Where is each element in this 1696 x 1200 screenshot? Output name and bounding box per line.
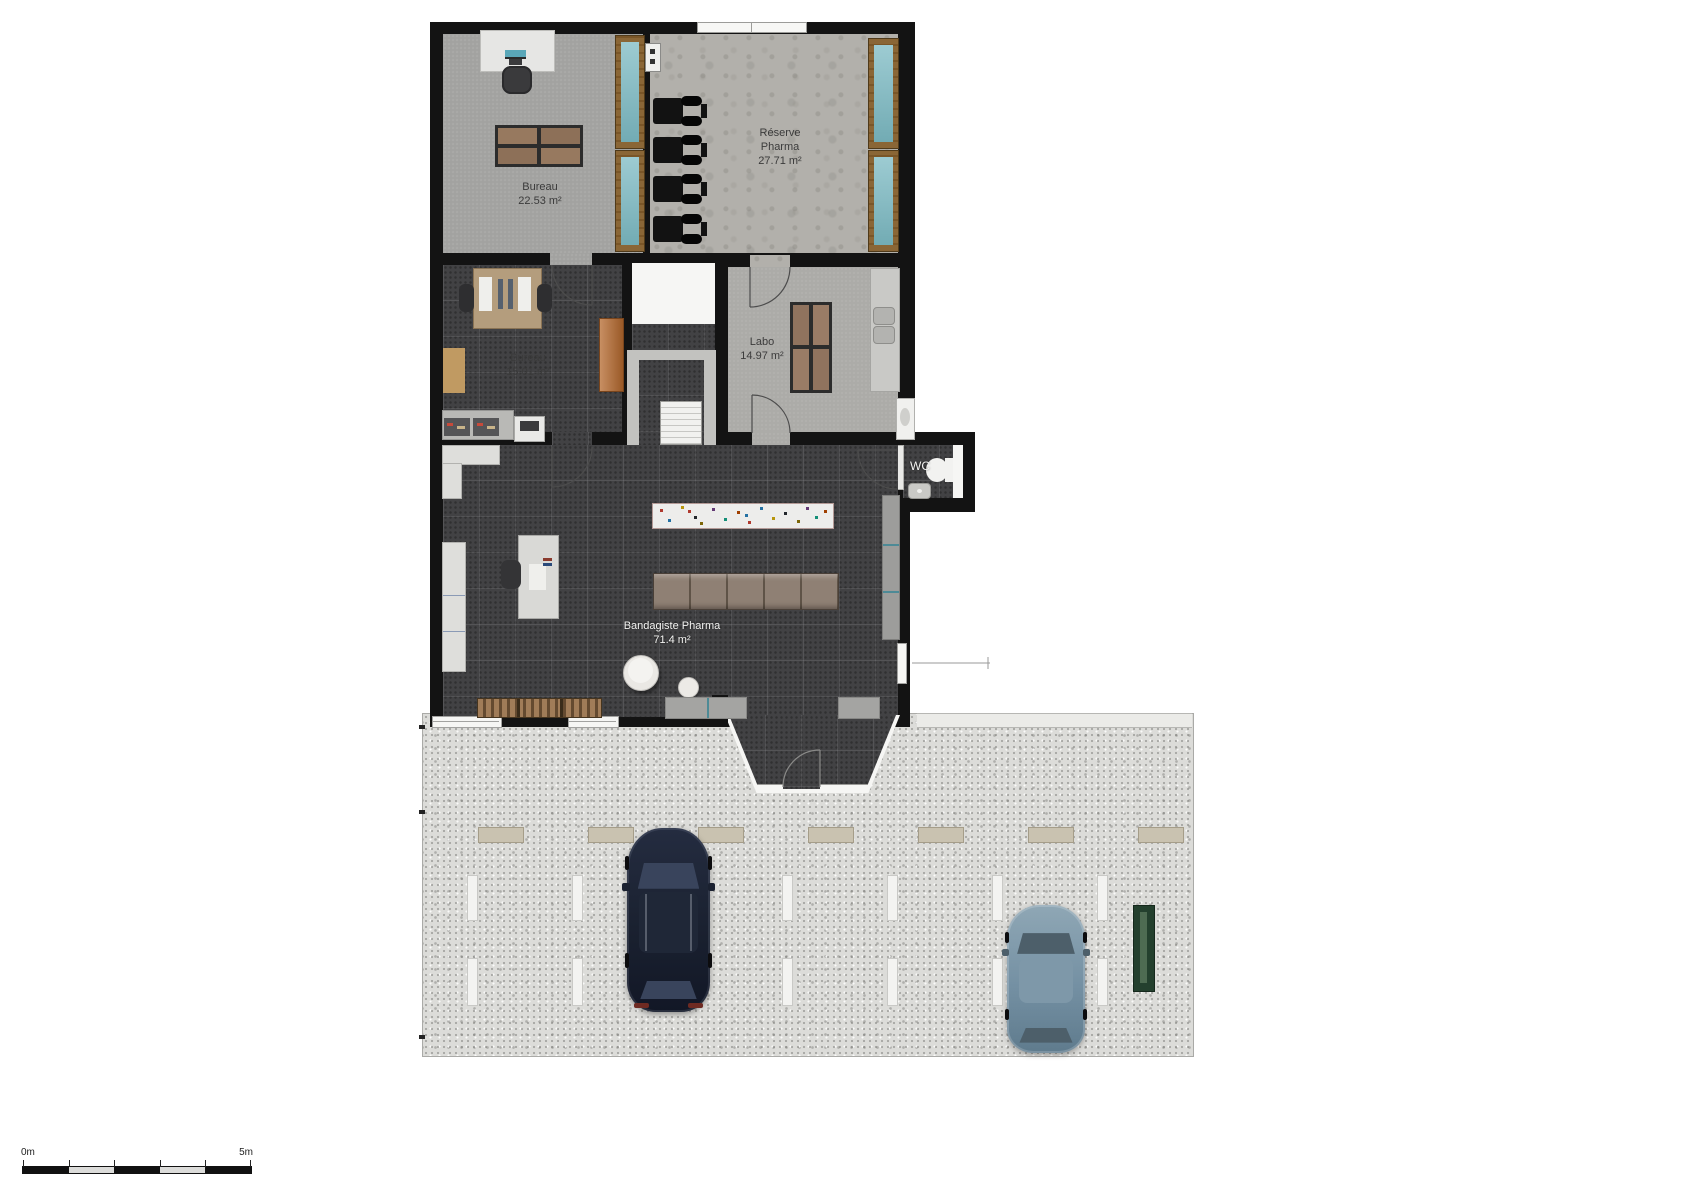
cabinet-row [653,573,839,610]
stair-shaft-wall [627,350,639,445]
scale-bar-tick [160,1160,161,1167]
car-rear-window [1019,1028,1072,1043]
scale-bar-tick [23,1160,24,1167]
wheelchair-seat [653,216,683,242]
cabinet-orange [599,318,624,392]
speed-bump [1028,827,1074,843]
storage-shelf [615,150,645,252]
keyboard [509,59,522,65]
dimension-tick [419,725,425,729]
vestibule-window [757,784,783,791]
car-rear-window [640,981,696,999]
printer-unit [473,418,499,436]
door-opening [752,432,790,445]
wheelchair-icon [653,174,708,204]
floor-plan-canvas: Bureau 22.53 m² Réserve Pharma 27.71 m² … [0,0,1696,1200]
desk-equipment [498,279,503,309]
speed-bump [698,827,744,843]
scale-bar-tick [69,1160,70,1167]
wc-sink [908,483,931,499]
table-panel [813,305,829,345]
product-dot [737,511,740,514]
car-windshield [1017,933,1075,954]
car-taillight [688,1003,703,1009]
wc-niche [953,445,963,498]
stool-large [623,655,659,691]
wheelchair-wheel [681,174,702,184]
product-dot [694,516,697,519]
car-wheel [708,953,712,968]
cabinet-divider [883,544,899,546]
desk-pad [529,564,546,590]
electrical-panel [645,43,661,72]
door-opening [550,253,592,265]
stall-marker [887,958,898,1006]
product-dot [815,516,818,519]
wheelchair-footrest [701,182,707,196]
car-wheel [708,856,712,871]
parking-curb-band [917,713,1192,728]
bench-divider [560,699,563,717]
stall-marker [572,875,583,921]
car-wheel [1005,1009,1009,1021]
office-chair [501,560,521,589]
stall-marker [467,875,478,921]
car-wheel [1083,932,1087,944]
room-label-labo: Labo 14.97 m² [712,336,812,364]
wheelchair-icon [653,214,708,244]
shelf-teal-inlay [874,157,893,245]
table-panel [541,128,580,144]
car-steel-blue [1007,905,1085,1053]
room-label-wc: WC [903,459,937,474]
room-label-shop: Bandagiste Pharma 71.4 m² [612,620,732,648]
sink [873,326,895,344]
car-mirror [1083,949,1090,956]
car-wheel [1005,932,1009,944]
panel-switch [650,59,655,64]
car-windshield [638,863,699,889]
car-roof-rail [690,894,692,951]
staircase [660,401,702,445]
scale-bar-start-label: 0m [21,1147,35,1158]
planter [1133,905,1155,992]
cabinet-divider [883,591,899,593]
wheelchair-icon [653,96,708,126]
printer-detail [477,423,483,426]
table-panel [813,349,829,390]
product-dot [772,517,775,520]
wheelchair-wheel [681,234,702,244]
product-dot [700,522,703,525]
table-panel [498,148,537,164]
dimension-tick [419,810,425,814]
wheelchair-wheel [681,116,702,126]
speed-bump [1138,827,1184,843]
washbasin-bowl [900,408,910,426]
product-dot [660,509,663,512]
shelf-divider [443,595,465,596]
stall-marker [1097,958,1108,1006]
wheelchair-seat [653,176,683,202]
room-label-reserve: Réserve Pharma 27.71 m² [730,127,830,168]
counter-divider [707,698,709,718]
wall-shelf [442,445,500,465]
scale-bar: 0m 5m [22,1166,252,1174]
stall-marker [467,958,478,1006]
wall-shelf [442,542,466,672]
waiting-bench [477,698,602,718]
car-roof-rail [645,894,647,951]
table-panel [498,128,537,144]
wheelchair-wheel [681,194,702,204]
stall-marker [992,875,1003,921]
stall-marker [572,958,583,1006]
stool-small [678,677,699,698]
shelf-teal-inlay [621,157,639,245]
entry-counter [665,697,747,719]
copier-bed [520,421,539,431]
room-label-bureau-mid: Bureau 15.01 m² [478,352,578,380]
scale-bar-segment [69,1167,115,1173]
stair-shaft-wall [627,350,716,360]
wc-sink-drain [917,489,922,493]
storage-shelf [615,35,645,149]
wheelchair-wheel [681,135,702,145]
wheelchair-footrest [701,143,707,157]
shop-desk [518,535,559,619]
bench-divider [517,699,520,717]
product-dot [748,521,751,524]
wheelchair-icon [653,135,708,165]
planter-inner [1140,912,1147,983]
printer-detail [457,426,465,429]
car-wheel [625,856,629,871]
door-opening [552,432,592,445]
car-wheel [625,953,629,968]
product-dot [760,507,763,510]
stall-marker [782,875,793,921]
speed-bump [588,827,634,843]
window-mullion [569,721,616,722]
speed-bump [808,827,854,843]
stair-void [632,263,715,324]
product-dot [806,507,809,510]
desk-pad [518,277,531,311]
scale-bar-segment [114,1167,160,1173]
stall-marker [1097,875,1108,921]
wheelchair-wheel [681,96,702,106]
scale-bar-segment [205,1167,251,1173]
wheelchair-wheel [681,155,702,165]
wheelchair-seat [653,137,683,163]
room-label-bureau-top: Bureau 22.53 m² [490,181,590,209]
storage-shelf [868,150,899,252]
sink [873,307,895,325]
printer-unit [444,418,470,436]
scale-bar-segment [23,1167,69,1173]
copier [514,416,545,442]
car-mirror [622,883,629,891]
floor-mat [443,348,465,393]
desk-item [543,558,552,561]
product-dot [668,519,671,522]
dimension-tick [419,1035,425,1039]
vestibule-window [820,784,868,791]
car-mirror [1002,949,1009,956]
scale-bar-tick [250,1160,251,1167]
printer-detail [447,423,453,426]
speed-bump [478,827,524,843]
panel-switch [650,49,655,54]
scale-bar-tick [114,1160,115,1167]
window-mullion [433,721,499,722]
stair-shaft-wall [704,350,716,445]
car-dark-navy [627,828,710,1012]
washbasin [896,398,915,440]
car-taillight [634,1003,649,1009]
stall-marker [782,958,793,1006]
desk-pad [479,277,492,311]
stall-marker [887,875,898,921]
scale-bar-segment [160,1167,206,1173]
entry-counter [838,697,880,719]
office-chair [537,284,552,312]
shelf-teal-inlay [874,45,893,142]
storage-shelf [868,38,899,149]
speed-bump [918,827,964,843]
product-dot [797,520,800,523]
product-dot [681,506,684,509]
product-dot [824,510,827,513]
desk-equipment [508,279,513,309]
door-opening [750,255,790,267]
wheelchair-seat [653,98,683,124]
shelf-divider [443,631,465,632]
wheelchair-footrest [701,104,707,118]
window-mullion [751,23,752,32]
window [897,643,907,684]
product-dot [724,518,727,521]
window [697,22,807,33]
office-chair [502,66,532,94]
product-dot [784,512,787,515]
office-chair [459,284,474,312]
wheelchair-footrest [701,222,707,236]
car-wheel [1083,1009,1087,1021]
car-mirror [708,883,715,891]
wall-cabinet-column [882,495,900,640]
wall-shelf [442,463,462,499]
car-roof [1019,958,1072,1002]
shelf-teal-inlay [621,42,639,142]
printer-detail [487,426,495,429]
table-panel [541,148,580,164]
meeting-table [495,125,583,167]
double-desk [473,268,542,329]
scale-bar-tick [205,1160,206,1167]
product-dot [712,508,715,511]
stool-top [628,658,653,683]
product-dot [745,514,748,517]
scale-bar-end-label: 5m [239,1147,253,1158]
desk-item [543,563,552,566]
wheelchair-wheel [681,214,702,224]
computer-monitor [505,50,526,59]
product-dot [688,510,691,513]
stall-marker [992,958,1003,1006]
